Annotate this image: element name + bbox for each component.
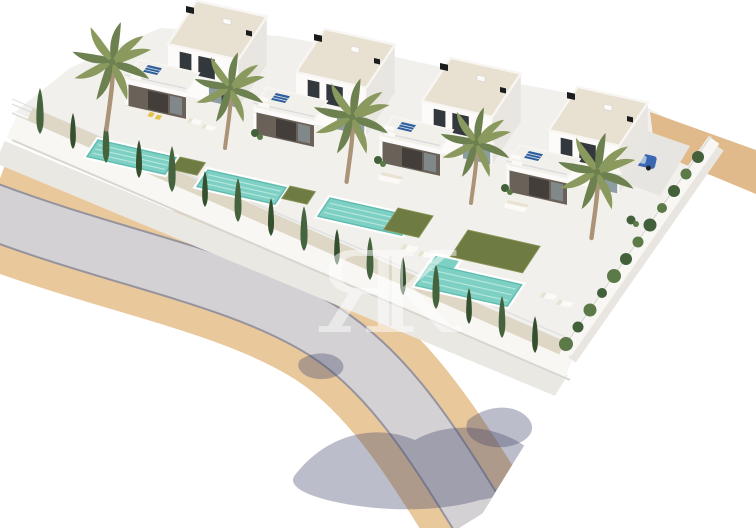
render-canvas: ЯK — [0, 0, 756, 528]
property-render: ЯK — [0, 0, 756, 528]
